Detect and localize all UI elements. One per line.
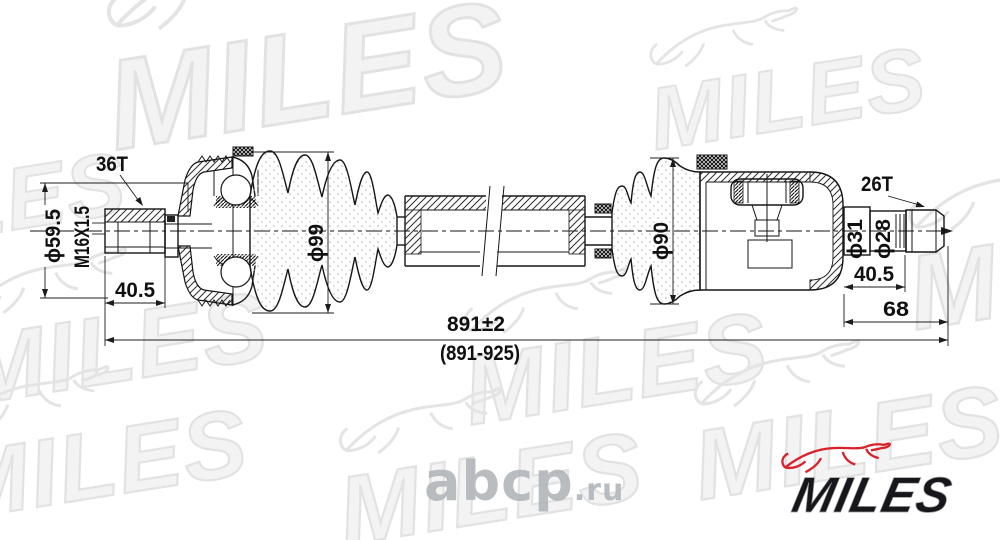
label-inner-boot-dia: ϕ90 [650, 222, 673, 260]
logo-brand-text: MILES [788, 467, 958, 523]
label-total-length-range: (891-925) [440, 342, 520, 365]
label-thread-spec: M16X1.5 [71, 206, 94, 268]
site-watermark-name: abcp [424, 450, 574, 513]
label-inner-stub-dia-outer: ϕ31 [844, 219, 867, 259]
label-outer-hub-dia: ϕ59.5 [42, 209, 65, 263]
label-outer-stub-length: 40.5 [115, 279, 155, 302]
label-inner-stub-dia-inner: ϕ28 [872, 219, 895, 259]
label-outer-boot-dia: ϕ99 [305, 224, 328, 262]
inner-boot-clamp-small [595, 204, 611, 213]
axis-centerline [30, 227, 953, 235]
cv-ball-bearing [221, 175, 251, 205]
outer-joint-flange [165, 215, 178, 257]
outer-boot-clamp [233, 147, 253, 156]
label-inner-joint-length: 68 [883, 298, 909, 321]
tripod-roller-bearing [731, 174, 803, 242]
label-total-length: 891±2 [447, 313, 505, 336]
label-outer-spline: 36T [96, 153, 128, 176]
drive-shaft-drawing-page: MILES [0, 0, 1000, 540]
cv-axle-technical-drawing: MILES [0, 0, 1000, 540]
label-inner-spline: 26T [861, 173, 893, 196]
site-watermark-tld: .ru [574, 473, 625, 508]
inner-cv-joint-housing [697, 155, 843, 290]
label-inner-stub-length: 40.5 [854, 263, 894, 286]
inner-boot-clamp-large [697, 155, 727, 169]
